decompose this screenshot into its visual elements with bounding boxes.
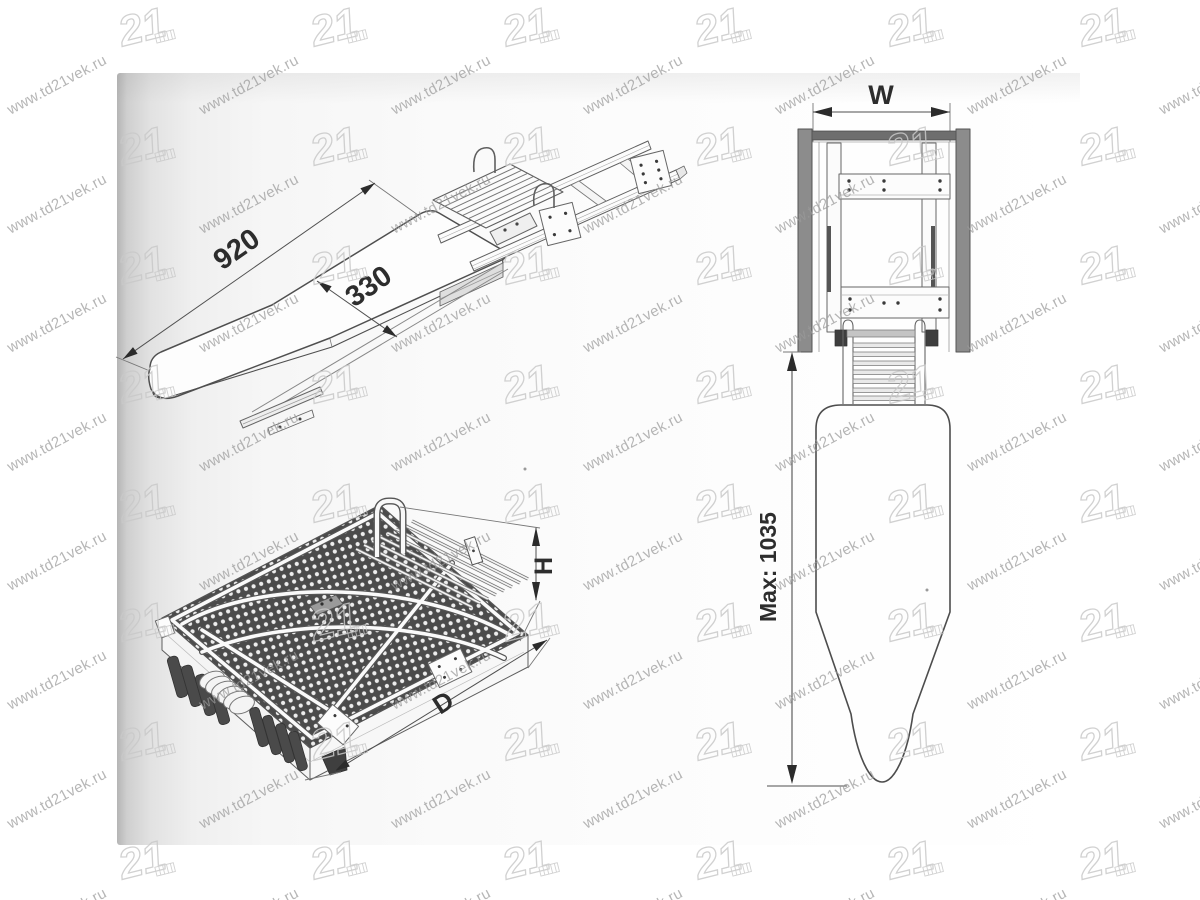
dimension-length-920: 920 xyxy=(208,223,266,277)
ladder-rungs xyxy=(853,343,915,401)
ironing-board-top-view xyxy=(816,405,950,782)
dimension-height-H: H xyxy=(530,557,558,575)
cabinet-side-panel-left xyxy=(798,129,812,352)
dimension-cabinet-width-W: W xyxy=(868,80,894,110)
dimension-max-extension-1035: Max: 1035 xyxy=(755,512,781,622)
cabinet-front-view: W xyxy=(755,80,970,786)
cabinet-side-panel-right xyxy=(956,129,970,352)
ironing-board-technical-drawing: 920 330 xyxy=(0,0,1200,900)
scanned-catalog-page: 920 330 xyxy=(0,0,1200,900)
extended-board-view: 920 330 xyxy=(116,141,687,435)
folded-board-view: H D xyxy=(155,468,558,781)
